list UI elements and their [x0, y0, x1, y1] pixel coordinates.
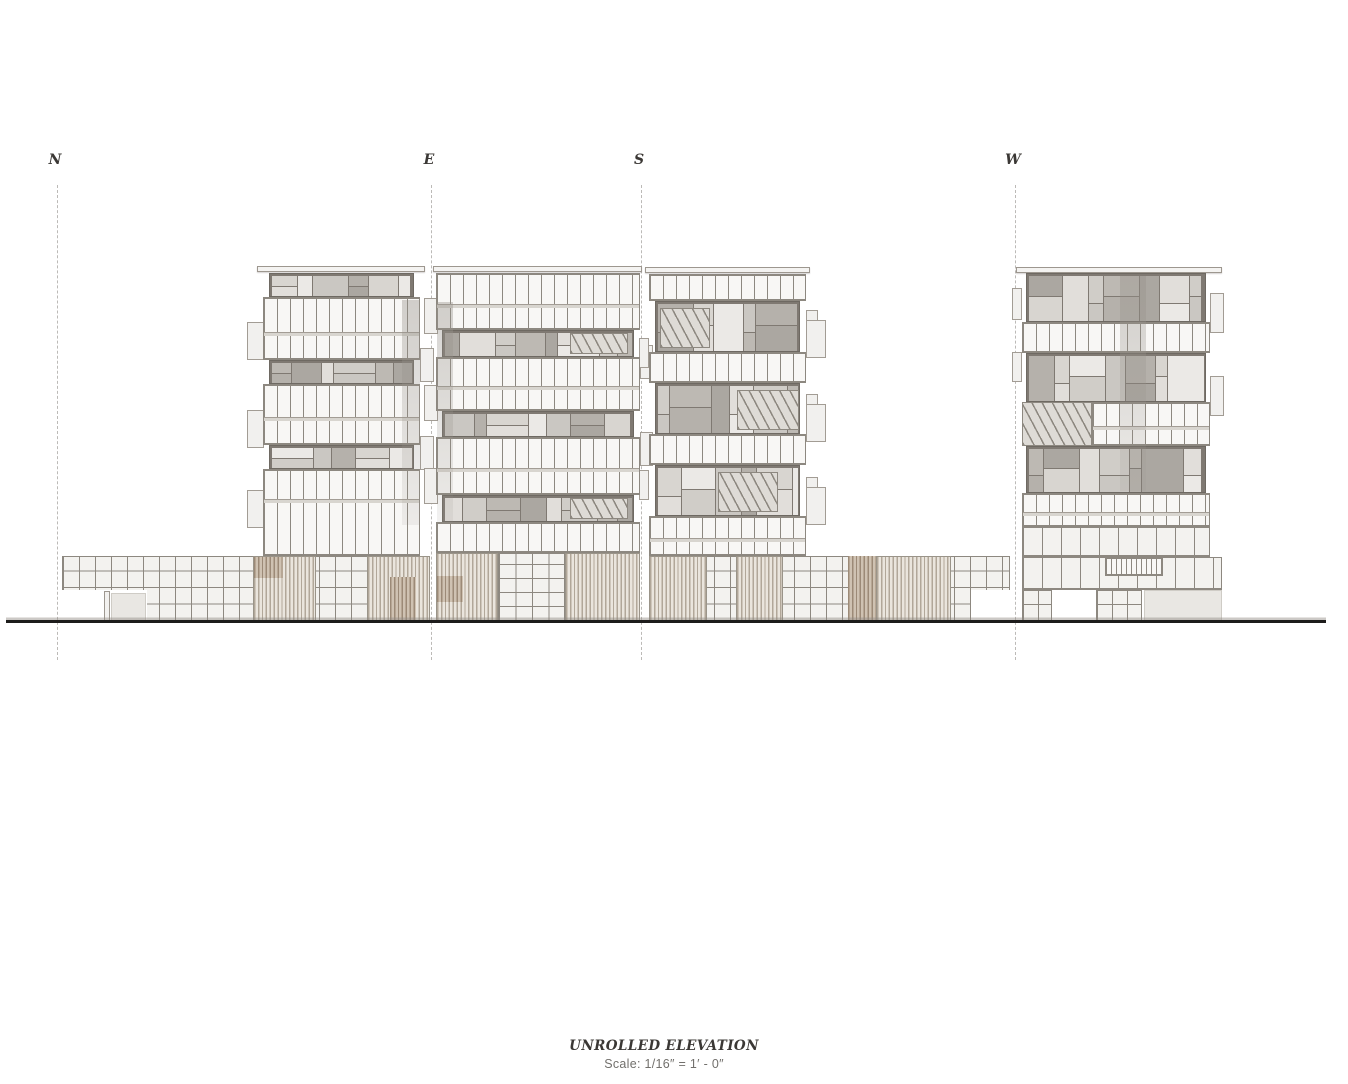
- wood-slat-screen-dark: [390, 577, 416, 621]
- section-line-S: [641, 185, 642, 660]
- clerestory-pane: [272, 287, 297, 296]
- clerestory-pane: [487, 414, 528, 425]
- floor-slab-line: [437, 304, 639, 308]
- wood-slat-screen: [876, 556, 951, 622]
- clerestory-pane: [793, 468, 798, 515]
- ground-line: [6, 620, 1326, 623]
- stair-diagonals: [570, 498, 628, 519]
- clerestory-pane: [529, 414, 546, 436]
- clerestory-pane: [1063, 276, 1088, 321]
- stair-diagonals: [660, 308, 710, 348]
- clerestory-pane: [714, 304, 743, 351]
- clerestory-pane: [369, 276, 398, 296]
- clerestory-pane: [1140, 276, 1159, 321]
- clerestory-band: [269, 445, 414, 469]
- clerestory-pane: [1029, 449, 1043, 475]
- clerestory-pane: [1055, 384, 1069, 401]
- clerestory-pane: [1160, 304, 1189, 321]
- balcony-ledge: [806, 404, 826, 442]
- clerestory-pane: [399, 276, 410, 296]
- clerestory-pane: [475, 414, 486, 436]
- clerestory-pane: [1044, 449, 1079, 468]
- clerestory-band: [1026, 273, 1206, 322]
- balcony-ledge: [1210, 376, 1224, 416]
- drawing-title: UNROLLED ELEVATION: [569, 1038, 759, 1054]
- mullion-band: [1022, 322, 1210, 353]
- clerestory-pane: [670, 386, 711, 407]
- balcony-ledge: [420, 436, 434, 470]
- clerestory-pane: [1184, 449, 1201, 475]
- clerestory-pane: [670, 408, 711, 433]
- clerestory-pane: [756, 326, 797, 351]
- clerestory-pane: [744, 304, 755, 332]
- clerestory-pane: [546, 333, 557, 356]
- mullion-band: [436, 357, 640, 411]
- clerestory-pane: [1156, 377, 1167, 401]
- clerestory-pane: [571, 414, 604, 425]
- mullion-band: [1092, 402, 1210, 446]
- stair-diagonals: [718, 472, 778, 512]
- balcony-ledge: [1012, 352, 1022, 382]
- clerestory-pane: [1130, 469, 1141, 492]
- clerestory-band: [1026, 353, 1206, 402]
- clerestory-pane: [445, 498, 462, 521]
- clerestory-pane: [322, 363, 333, 383]
- clerestory-pane: [272, 448, 313, 458]
- stair-diagonals: [1022, 402, 1092, 446]
- stair-diagonals: [570, 333, 628, 354]
- wall-panel: [104, 591, 110, 622]
- clerestory-pane: [390, 448, 412, 468]
- clerestory-pane: [756, 304, 797, 325]
- mullion-band: [649, 352, 806, 383]
- balcony-ledge: [639, 338, 649, 368]
- mullion-band: [1105, 557, 1163, 576]
- clerestory-pane: [1070, 377, 1105, 401]
- clerestory-pane: [394, 363, 412, 383]
- roof-slab: [433, 266, 642, 272]
- balcony-ledge: [639, 470, 649, 500]
- clerestory-pane: [334, 374, 375, 383]
- stair-diagonals: [737, 390, 799, 430]
- glazing-grid: [498, 553, 565, 622]
- clerestory-pane: [682, 468, 715, 489]
- clerestory-pane: [1190, 276, 1201, 296]
- clerestory-pane: [496, 346, 515, 356]
- clerestory-pane: [1080, 449, 1099, 492]
- clerestory-pane: [547, 414, 570, 436]
- clerestory-pane: [272, 459, 313, 468]
- clerestory-pane: [1104, 297, 1139, 321]
- floor-slab-line: [650, 538, 805, 542]
- mullion-band: [436, 273, 640, 330]
- balcony-ledge: [420, 348, 434, 382]
- glazing-grid: [1096, 590, 1142, 622]
- clerestory-pane: [349, 287, 368, 296]
- section-line-W: [1015, 185, 1016, 660]
- section-marker-label-W: W: [1005, 152, 1021, 168]
- clerestory-pane: [658, 468, 681, 496]
- mullion-band: [263, 384, 420, 445]
- glazing-grid: [1022, 590, 1052, 622]
- balcony-ledge: [247, 490, 264, 528]
- clerestory-pane: [298, 276, 312, 296]
- wood-slat-screen: [736, 556, 783, 622]
- clerestory-pane: [1089, 304, 1103, 321]
- floor-slab-line: [1093, 426, 1209, 430]
- clerestory-pane: [487, 511, 520, 521]
- section-marker-label-E: E: [424, 152, 435, 168]
- clerestory-pane: [314, 448, 331, 468]
- clerestory-pane: [1055, 356, 1069, 383]
- floor-slab-line: [1023, 512, 1209, 516]
- clerestory-pane: [463, 498, 486, 521]
- clerestory-pane: [658, 386, 669, 414]
- clerestory-band: [442, 411, 634, 437]
- clerestory-pane: [1160, 276, 1189, 303]
- clerestory-pane: [1168, 356, 1204, 401]
- clerestory-pane: [1190, 297, 1201, 321]
- mullion-band: [1022, 493, 1210, 527]
- wood-slat-screen-dark: [437, 576, 463, 602]
- mullion-band: [649, 516, 806, 556]
- clerestory-pane: [1029, 476, 1043, 492]
- clerestory-pane: [292, 363, 321, 383]
- clerestory-band: [1026, 446, 1206, 493]
- clerestory-pane: [356, 459, 389, 468]
- clerestory-pane: [605, 414, 630, 436]
- clerestory-pane: [272, 374, 291, 383]
- glazing-grid: [1022, 527, 1210, 557]
- clerestory-pane: [356, 448, 389, 458]
- mullion-band: [649, 274, 806, 301]
- clerestory-pane: [1029, 276, 1062, 296]
- mullion-band: [263, 469, 420, 556]
- clerestory-pane: [376, 363, 393, 383]
- wood-slat-screen: [565, 553, 640, 622]
- clerestory-band: [269, 273, 414, 297]
- clerestory-pane: [571, 426, 604, 436]
- clerestory-pane: [332, 448, 355, 468]
- drawing-scale-note: Scale: 1/16″ = 1′ - 0″: [569, 1057, 759, 1071]
- clerestory-band: [269, 360, 414, 384]
- clerestory-pane: [1156, 356, 1167, 376]
- section-line-N: [57, 185, 58, 660]
- clerestory-pane: [460, 333, 495, 356]
- clerestory-pane: [1130, 449, 1141, 468]
- clerestory-pane: [445, 333, 459, 356]
- floor-slab-line: [437, 386, 639, 390]
- clerestory-pane: [1184, 476, 1201, 492]
- roof-slab: [257, 266, 425, 272]
- clerestory-pane: [496, 333, 515, 345]
- title-block: UNROLLED ELEVATION Scale: 1/16″ = 1′ - 0…: [569, 1038, 759, 1071]
- clerestory-pane: [1106, 356, 1125, 401]
- clerestory-pane: [487, 426, 528, 436]
- wood-slat-screen-dark: [254, 557, 283, 578]
- clerestory-pane: [682, 490, 715, 515]
- balcony-ledge: [1210, 293, 1224, 333]
- balcony-ledge: [806, 320, 826, 358]
- clerestory-pane: [547, 498, 561, 521]
- clerestory-pane: [521, 498, 546, 521]
- elevation-sheet: NESW UNROLLED ELEVATION Scale: 1/16″ = 1…: [0, 0, 1348, 1084]
- clerestory-pane: [1089, 276, 1103, 303]
- clerestory-pane: [712, 386, 729, 433]
- roof-slab: [645, 267, 810, 273]
- clerestory-pane: [1142, 449, 1183, 492]
- balcony-ledge: [806, 487, 826, 525]
- floor-slab-line: [437, 468, 639, 472]
- clerestory-pane: [1126, 356, 1155, 383]
- mullion-band: [263, 297, 420, 360]
- wood-slat-screen-dark: [848, 556, 876, 622]
- mullion-band: [649, 434, 806, 465]
- clerestory-pane: [1104, 276, 1139, 296]
- clerestory-pane: [349, 276, 368, 286]
- clerestory-pane: [516, 333, 545, 356]
- section-line-E: [431, 185, 432, 660]
- wood-slat-screen: [649, 556, 707, 622]
- balcony-ledge: [1012, 288, 1022, 320]
- clerestory-pane: [313, 276, 348, 296]
- clerestory-pane: [272, 276, 297, 286]
- clerestory-pane: [334, 363, 375, 373]
- recessed-volume: [111, 593, 146, 621]
- mullion-band: [436, 522, 640, 553]
- clerestory-pane: [272, 363, 291, 373]
- clerestory-pane: [1029, 356, 1054, 401]
- clerestory-pane: [658, 415, 669, 433]
- mullion-band: [436, 437, 640, 495]
- clerestory-pane: [1100, 476, 1129, 492]
- clerestory-pane: [1100, 449, 1129, 475]
- clerestory-pane: [1126, 384, 1155, 401]
- clerestory-pane: [487, 498, 520, 510]
- clerestory-pane: [1044, 469, 1079, 492]
- floor-slab-line: [264, 499, 419, 503]
- recessed-volume: [1144, 590, 1222, 621]
- section-marker-label-N: N: [49, 152, 62, 168]
- open-undercut: [971, 590, 1010, 622]
- clerestory-pane: [1029, 297, 1062, 321]
- clerestory-pane: [744, 333, 755, 351]
- clerestory-pane: [445, 414, 474, 436]
- balcony-ledge: [247, 322, 264, 360]
- floor-slab-line: [264, 332, 419, 336]
- balcony-ledge: [247, 410, 264, 448]
- clerestory-pane: [1070, 356, 1105, 376]
- clerestory-pane: [658, 497, 681, 515]
- floor-slab-line: [264, 417, 419, 421]
- section-marker-label-S: S: [634, 152, 644, 168]
